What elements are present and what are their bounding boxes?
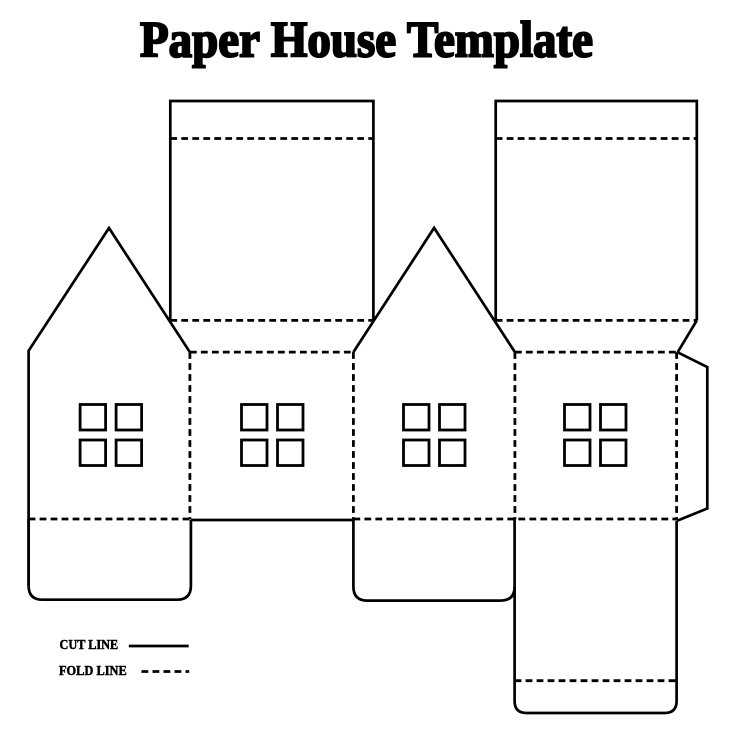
- svg-text:CUT LINE: CUT LINE: [60, 637, 119, 652]
- svg-text:FOLD LINE: FOLD LINE: [59, 663, 127, 678]
- svg-text:Paper House Template: Paper House Template: [140, 12, 593, 68]
